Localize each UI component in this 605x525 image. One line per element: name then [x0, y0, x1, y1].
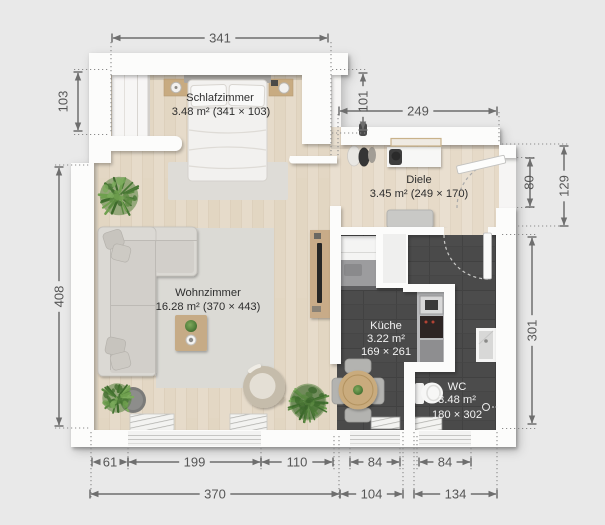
- svg-text:249: 249: [407, 104, 429, 119]
- svg-text:129: 129: [557, 175, 572, 197]
- svg-text:341: 341: [209, 31, 231, 46]
- svg-text:3.48 m²: 3.48 m²: [438, 394, 476, 406]
- svg-text:Küche: Küche: [370, 320, 402, 332]
- svg-text:110: 110: [287, 455, 308, 470]
- svg-text:16.28 m² (370 × 443): 16.28 m² (370 × 443): [156, 301, 261, 313]
- svg-text:3.45 m² (249 × 170): 3.45 m² (249 × 170): [370, 188, 469, 200]
- svg-text:169 × 261: 169 × 261: [361, 346, 411, 358]
- svg-text:84: 84: [368, 455, 382, 470]
- svg-text:101: 101: [356, 91, 371, 113]
- svg-text:104: 104: [361, 487, 383, 502]
- svg-text:80: 80: [522, 175, 537, 189]
- svg-text:103: 103: [56, 91, 71, 113]
- svg-text:Diele: Diele: [406, 174, 432, 186]
- svg-text:WC: WC: [448, 381, 467, 393]
- svg-text:199: 199: [184, 455, 206, 470]
- svg-text:3.22 m²: 3.22 m²: [367, 333, 405, 345]
- svg-text:Schlafzimmer: Schlafzimmer: [186, 92, 254, 104]
- svg-text:Wohnzimmer: Wohnzimmer: [175, 287, 241, 299]
- svg-text:408: 408: [52, 286, 67, 308]
- svg-text:180 × 302: 180 × 302: [432, 409, 482, 421]
- svg-text:134: 134: [445, 487, 467, 502]
- svg-text:301: 301: [525, 320, 540, 342]
- svg-text:370: 370: [204, 487, 226, 502]
- svg-text:84: 84: [438, 455, 452, 470]
- svg-text:3.48 m² (341 × 103): 3.48 m² (341 × 103): [172, 106, 271, 118]
- svg-text:61: 61: [103, 455, 117, 470]
